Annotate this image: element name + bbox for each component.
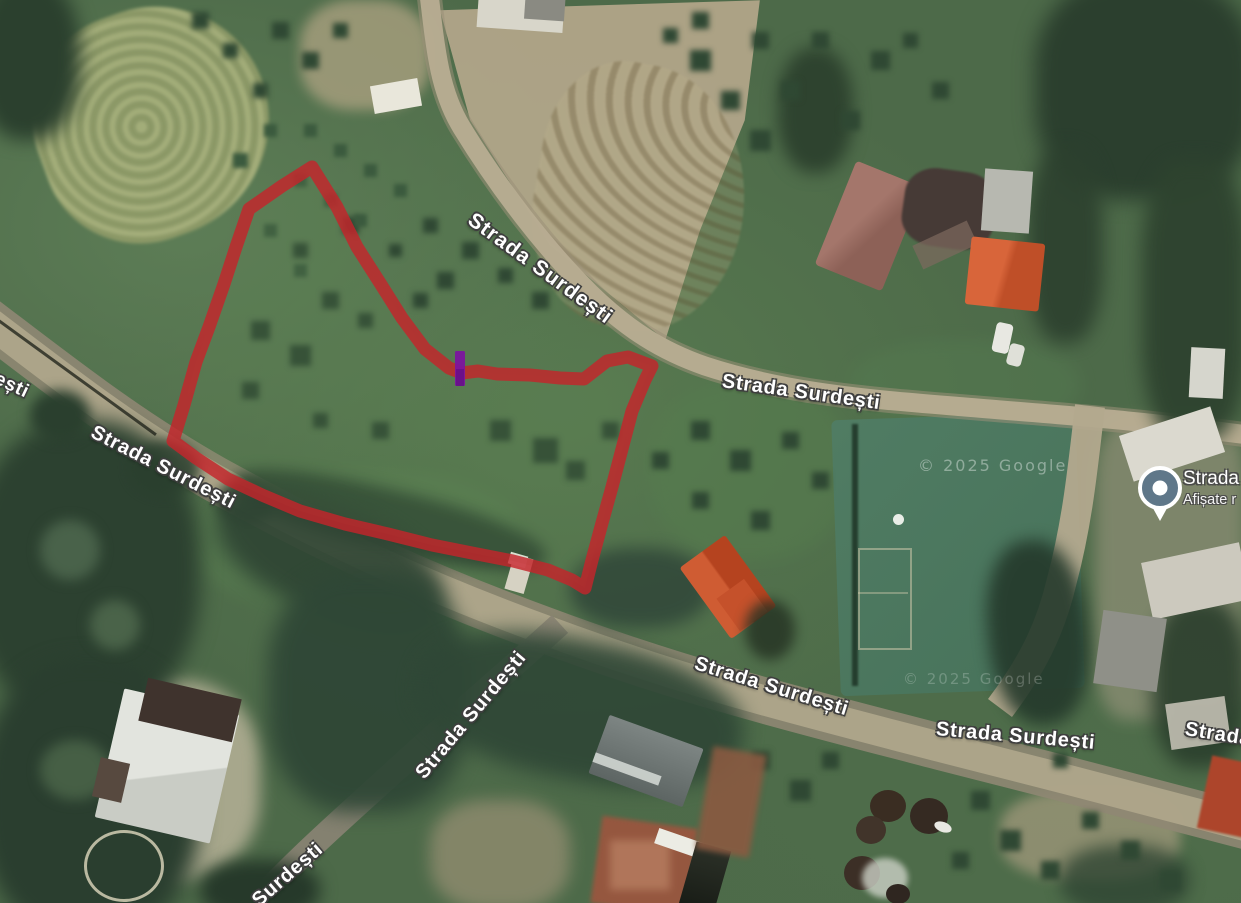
pin-dot	[1153, 481, 1168, 496]
parcel-outline[interactable]	[173, 167, 652, 588]
parcel-layer	[0, 0, 1241, 903]
place-pin-icon[interactable]	[1132, 462, 1188, 524]
place-result-title[interactable]: Strada	[1183, 468, 1239, 490]
parcel-marker-shade	[456, 369, 464, 386]
satellite-map-viewport[interactable]: © 2025 Google © 2025 Google dești Strada…	[0, 0, 1241, 903]
place-result-subtitle: Afișate r	[1183, 492, 1236, 508]
